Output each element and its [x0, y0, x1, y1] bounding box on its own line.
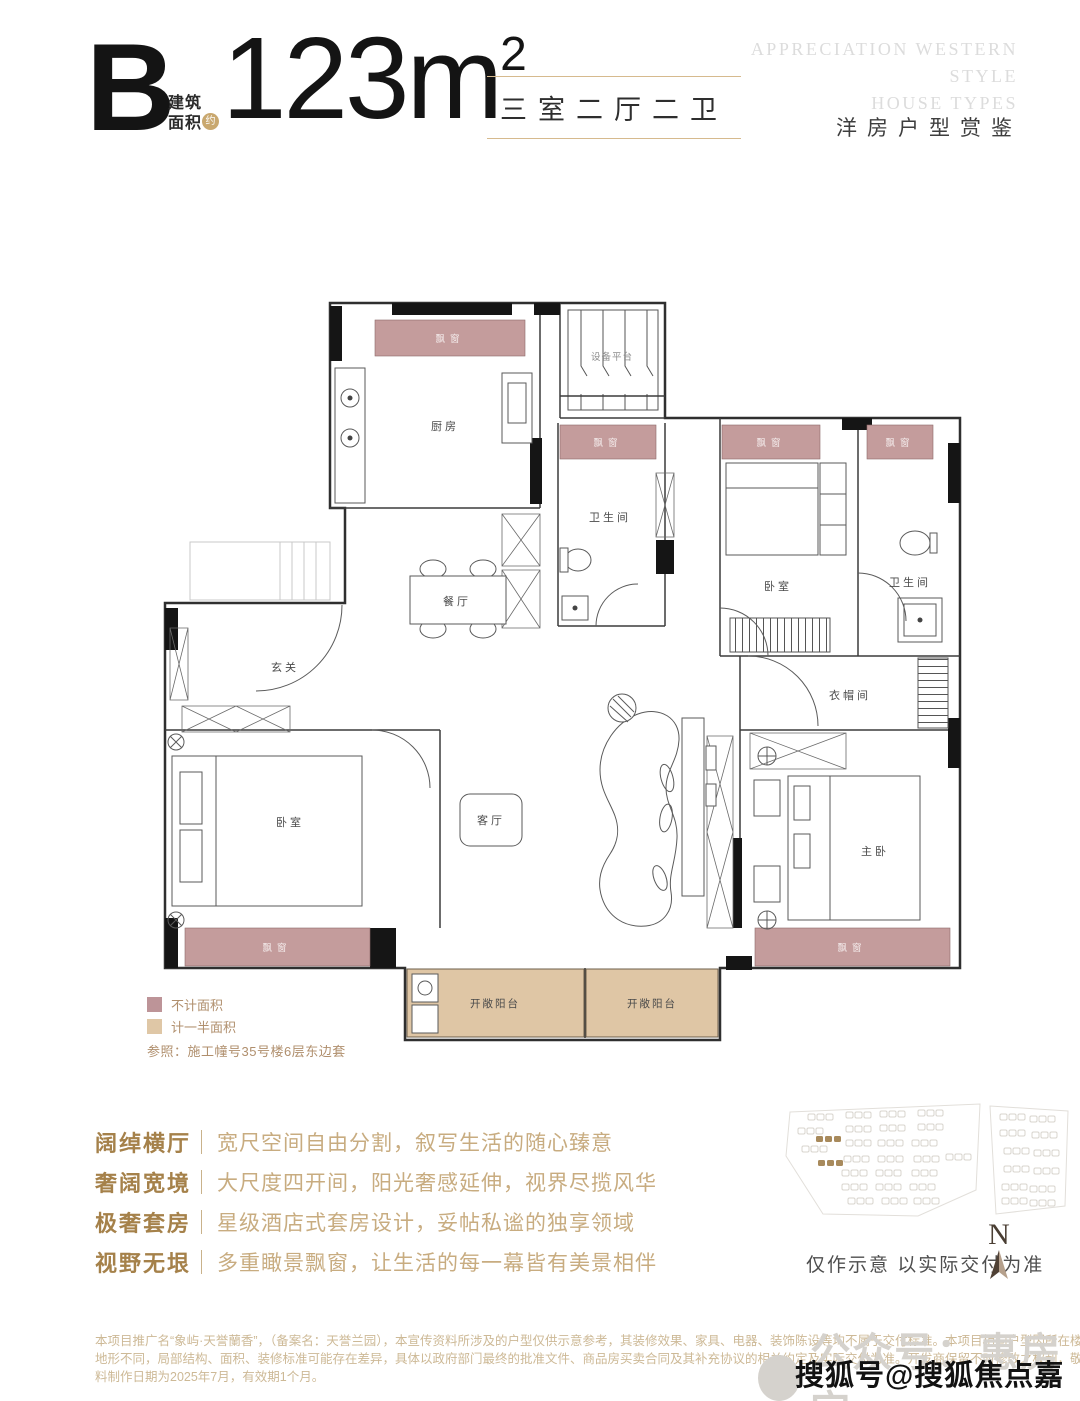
wechat-logo-icon [758, 1355, 800, 1401]
master-label: 主卧 [861, 845, 889, 858]
feature-title: 极奢套房 [95, 1206, 191, 1238]
legend: 不计面积 计一半面积 参照：施工幢号35号楼6层东边套 [147, 993, 346, 1060]
area-superscript: 2 [500, 28, 527, 81]
area-caption-line1: 建筑 [168, 94, 202, 114]
legend-label-1: 不计面积 [171, 995, 223, 1014]
english-title-line1: APPRECIATION WESTERN [751, 36, 1018, 63]
living-furniture [460, 694, 716, 926]
feature-desc: 大尺度四开间，阳光奢感延伸，视界尽揽风华 [217, 1167, 657, 1197]
foyer-label: 玄关 [271, 660, 299, 674]
feature-divider [201, 1130, 202, 1154]
flyer-page: B 建筑 面积 约 123m2 三室二厅二卫 APPRECIATION WEST… [0, 0, 1080, 1401]
feature-title: 奢阔宽境 [95, 1166, 191, 1198]
feature-row: 奢阔宽境 大尺度四开间，阳光奢感延伸，视界尽揽风华 [95, 1162, 657, 1202]
bay-window-label: 飘窗 [885, 437, 914, 449]
bay-window-label: 飘窗 [435, 333, 464, 345]
feature-desc: 星级酒店式套房设计，妥帖私谧的独享领域 [217, 1207, 635, 1237]
feature-divider [201, 1170, 202, 1194]
balcony-label: 开敞阳台 [470, 997, 520, 1010]
feature-row: 视野无垠 多重瞰景飘窗，让生活的每一幕皆有美景相伴 [95, 1242, 657, 1282]
approx-badge: 约 [202, 113, 219, 130]
area-number: 123m [222, 13, 500, 143]
feature-desc: 多重瞰景飘窗，让生活的每一幕皆有美景相伴 [217, 1247, 657, 1277]
bath1-fixtures [560, 548, 638, 626]
feature-divider [201, 1250, 202, 1274]
cloakroom-label: 衣帽间 [829, 688, 871, 702]
legend-swatch-tan [147, 1019, 162, 1034]
legend-label-2: 计一半面积 [171, 1017, 236, 1036]
sohu-watermark: 搜狐号@搜狐焦点嘉峪关站 [795, 1352, 1080, 1401]
feature-desc: 宽尺空间自由分割，叙写生活的随心臻意 [217, 1127, 613, 1157]
layout-summary: 三室二厅二卫 [487, 76, 741, 139]
bedroom2-label: 卧室 [764, 579, 792, 593]
chinese-subtitle: 洋房户型赏鉴 [836, 112, 1022, 142]
floorplan-drawing: 飘窗 飘窗 飘窗 飘窗 飘窗 飘窗 开敞阳台 开敞阳台 设备平台 [130, 278, 975, 1043]
feature-title: 阔绰横厅 [95, 1126, 191, 1158]
cloakroom-fixtures [748, 656, 948, 769]
bay-window-label: 飘窗 [262, 942, 291, 954]
equipment-platform: 设备平台 [560, 310, 665, 410]
compass-letter: N [988, 1220, 1010, 1250]
area-value: 123m2 [222, 18, 527, 140]
legend-swatch-pink [147, 997, 162, 1012]
equipment-platform-label: 设备平台 [591, 351, 633, 363]
kitchen-label: 厨房 [431, 420, 459, 433]
siteplan-buildings [798, 1110, 1059, 1206]
balconies: 开敞阳台 开敞阳台 [407, 969, 718, 1037]
bay-window-label: 飘窗 [593, 437, 622, 449]
feature-divider [201, 1210, 202, 1234]
living-label: 客厅 [477, 813, 505, 827]
feature-row: 极奢套房 星级酒店式套房设计，妥帖私谧的独享领域 [95, 1202, 657, 1242]
feature-list: 阔绰横厅 宽尺空间自由分割，叙写生活的随心臻意 奢阔宽境 大尺度四开间，阳光奢感… [95, 1122, 657, 1282]
stair-core-outline [190, 542, 330, 600]
feature-title: 视野无垠 [95, 1246, 191, 1278]
bedroom1-furniture [168, 730, 430, 928]
legend-item-2: 计一半面积 [147, 1015, 346, 1037]
dining-label: 餐厅 [443, 594, 471, 608]
legend-reference: 参照：施工幢号35号楼6层东边套 [147, 1041, 346, 1060]
legend-item-1: 不计面积 [147, 993, 346, 1015]
foyer-fixtures [170, 605, 342, 732]
bay-window-label: 飘窗 [837, 942, 866, 954]
siteplan-sketch [768, 1098, 1078, 1248]
bath2-label: 卫生间 [889, 575, 931, 589]
balcony-label: 开敞阳台 [627, 997, 677, 1010]
bedroom1-label: 卧室 [276, 815, 304, 829]
feature-row: 阔绰横厅 宽尺空间自由分割，叙写生活的随心臻意 [95, 1122, 657, 1162]
compass: N [988, 1220, 1010, 1287]
bath1-label: 卫生间 [589, 510, 631, 524]
english-title-line2: STYLE [751, 63, 1018, 90]
bedroom2-furniture [720, 463, 846, 656]
area-caption-line2: 面积 [168, 114, 202, 134]
unit-type-letter: B [86, 26, 176, 150]
english-title: APPRECIATION WESTERN STYLE HOUSE TYPES [751, 36, 1018, 117]
compass-arrow-icon [988, 1250, 1010, 1282]
bay-window-label: 飘窗 [756, 437, 785, 449]
area-caption: 建筑 面积 [168, 94, 202, 134]
